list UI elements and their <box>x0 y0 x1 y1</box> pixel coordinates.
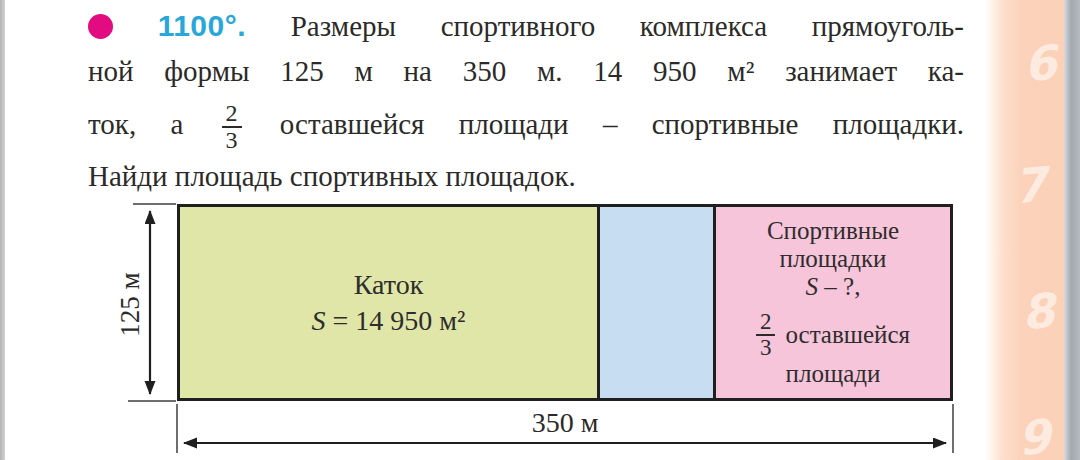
problem-line-3: ток, а 2 3 оставшейся площади – спортивн… <box>88 94 964 154</box>
fraction-numerator: 2 <box>222 101 242 126</box>
fraction-two-thirds: 2 3 <box>222 101 242 153</box>
page-edge-number-8: 8 <box>1014 282 1063 341</box>
sports-fraction-two-thirds: 2 3 <box>756 310 776 360</box>
page-edge-number-9: 9 <box>1010 408 1059 460</box>
problem-marker-icon <box>88 14 113 39</box>
page-left-edge <box>0 0 5 460</box>
width-dimension-label: 350 м <box>465 407 665 439</box>
sports-area-question: – ?, <box>824 273 860 300</box>
sports-title-line-2: площадки <box>780 245 887 273</box>
page-edge-number-6: 6 <box>1016 34 1065 93</box>
problem-line-1-text: Размеры спортивного комплекса прямоуголь… <box>291 10 964 42</box>
page-edge-number-7: 7 <box>1006 156 1055 215</box>
sports-fraction-denominator: 3 <box>756 334 776 360</box>
sports-area-symbol: S <box>806 273 819 300</box>
textbook-page: 1100°. Размеры спортивного комплекса пря… <box>0 0 1080 460</box>
katok-title: Каток <box>354 269 423 301</box>
problem-line-4: Найди площадь спортивных площадок. <box>88 154 964 198</box>
problem-line-3-after: оставшейся площади – спортивные площадки… <box>280 108 964 140</box>
problem-line-1: 1100°. Размеры спортивного комплекса пря… <box>88 4 964 48</box>
height-dimension-label: 125 м <box>115 267 146 343</box>
page-edge-shadow <box>1064 0 1080 460</box>
problem-text-block: 1100°. Размеры спортивного комплекса пря… <box>88 4 964 198</box>
katok-area-symbol: S <box>312 305 326 336</box>
sports-fraction-row: 2 3 оставшейся <box>756 310 910 360</box>
sports-area-line: S – ?, <box>806 273 861 301</box>
sports-title-line-1: Спортивные <box>767 217 899 245</box>
sports-grounds-segment: Спортивные площадки S – ?, 2 3 оставшейс… <box>716 207 950 398</box>
fraction-denominator: 3 <box>222 126 242 153</box>
katok-area-value: = 14 950 м² <box>333 305 466 336</box>
problem-line-2: ной формы 125 м на 350 м. 14 950 м² зани… <box>88 48 964 94</box>
katok-area: S = 14 950 м² <box>312 305 466 337</box>
sports-last-line: площади <box>786 360 881 388</box>
katok-segment: Каток S = 14 950 м² <box>180 207 600 398</box>
sports-fraction-numerator: 2 <box>756 310 776 334</box>
remaining-segment <box>600 207 716 398</box>
problem-line-3-before: ток, а <box>88 108 183 140</box>
problem-number: 1100°. <box>158 9 246 42</box>
sports-fraction-label: оставшейся <box>785 321 910 349</box>
sports-complex-rectangle: Каток S = 14 950 м² Спортивные площадки … <box>177 204 953 401</box>
